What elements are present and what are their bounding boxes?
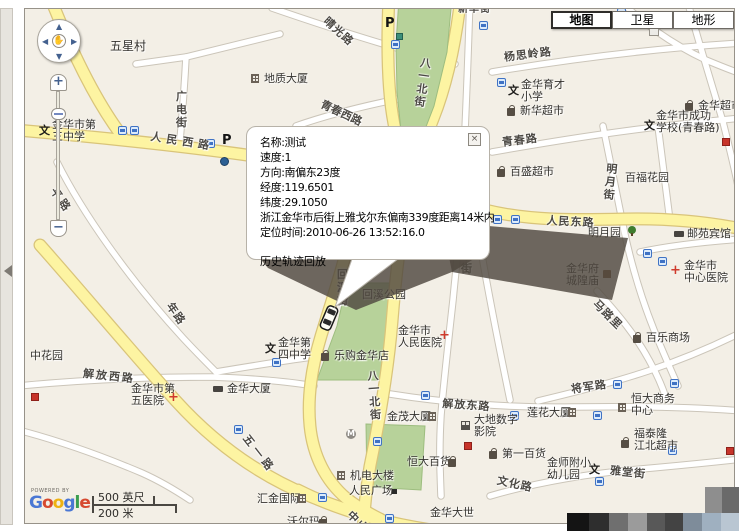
mosaic-block <box>702 513 721 531</box>
popup-body: 名称:测试速度:1方向:南偏东23度经度:119.6501纬度:29.1050浙… <box>260 135 479 269</box>
map-type-button-option[interactable]: 卫星 <box>612 11 673 29</box>
mosaic-block <box>665 513 683 531</box>
pan-down-icon[interactable]: ▼ <box>56 52 62 61</box>
pan-right-icon[interactable]: ▶ <box>71 37 77 46</box>
pan-left-icon[interactable]: ◀ <box>42 37 48 46</box>
zoom-out-button[interactable]: − <box>50 220 67 237</box>
popup-info-line: 方向:南偏东23度 <box>260 165 479 180</box>
vehicle-info-popup: × 名称:测试速度:1方向:南偏东23度经度:119.6501纬度:29.105… <box>246 126 490 260</box>
mosaic-block <box>609 513 628 531</box>
pan-hand-icon[interactable]: ✋ <box>52 34 66 48</box>
mosaic-block <box>647 513 665 531</box>
popup-info-line: 纬度:29.1050 <box>260 195 479 210</box>
google-logo[interactable]: Google <box>29 493 90 513</box>
popup-info-line: 名称:测试 <box>260 135 479 150</box>
map-type-control: 地图卫星地形 <box>551 11 734 29</box>
zoom-slider-handle[interactable] <box>51 108 66 120</box>
map-canvas[interactable]: MPP 人民西路人民东路解放西路解放东路青春路青春西路晴光路杨思岭路广电街回溪街… <box>24 8 735 524</box>
mosaic-block <box>628 513 647 531</box>
map-frame: MPP 人民西路人民东路解放西路解放东路青春路青春西路晴光路杨思岭路广电街回溪街… <box>24 8 735 524</box>
scale-meters-label: 200 米 <box>98 505 134 521</box>
mosaic-block <box>589 513 609 531</box>
history-playback-link[interactable]: 历史轨迹回放 <box>260 254 479 269</box>
scale-feet-label: 500 英尺 <box>98 489 145 505</box>
gps-tracking-map-page: MPP 人民西路人民东路解放西路解放东路青春路青春西路晴光路杨思岭路广电街回溪街… <box>0 0 739 531</box>
mosaic-block <box>683 513 702 531</box>
popup-info-line: 定位时间:2010-06-26 13:52:16.0 <box>260 225 479 240</box>
map-type-button-option[interactable]: 地形 <box>673 11 734 29</box>
zoom-in-button[interactable]: + <box>50 74 67 91</box>
pan-up-icon[interactable]: ▲ <box>56 22 62 31</box>
mosaic-block <box>567 513 589 531</box>
map-type-expander[interactable] <box>649 29 659 36</box>
popup-info-line: 经度:119.6501 <box>260 180 479 195</box>
pan-control[interactable]: ▲ ▼ ◀ ▶ ✋ <box>37 19 81 63</box>
collapse-panel-icon[interactable] <box>4 265 12 277</box>
map-type-button-selected[interactable]: 地图 <box>551 11 612 29</box>
mosaic-block <box>722 487 739 513</box>
popup-info-line: 速度:1 <box>260 150 479 165</box>
mosaic-block <box>721 513 739 531</box>
sidebar-splitter[interactable] <box>0 8 13 525</box>
mosaic-block <box>705 487 722 513</box>
popup-info-line: 浙江金华市后街上雅戈尔东偏南339度距离14米内 <box>260 210 479 225</box>
